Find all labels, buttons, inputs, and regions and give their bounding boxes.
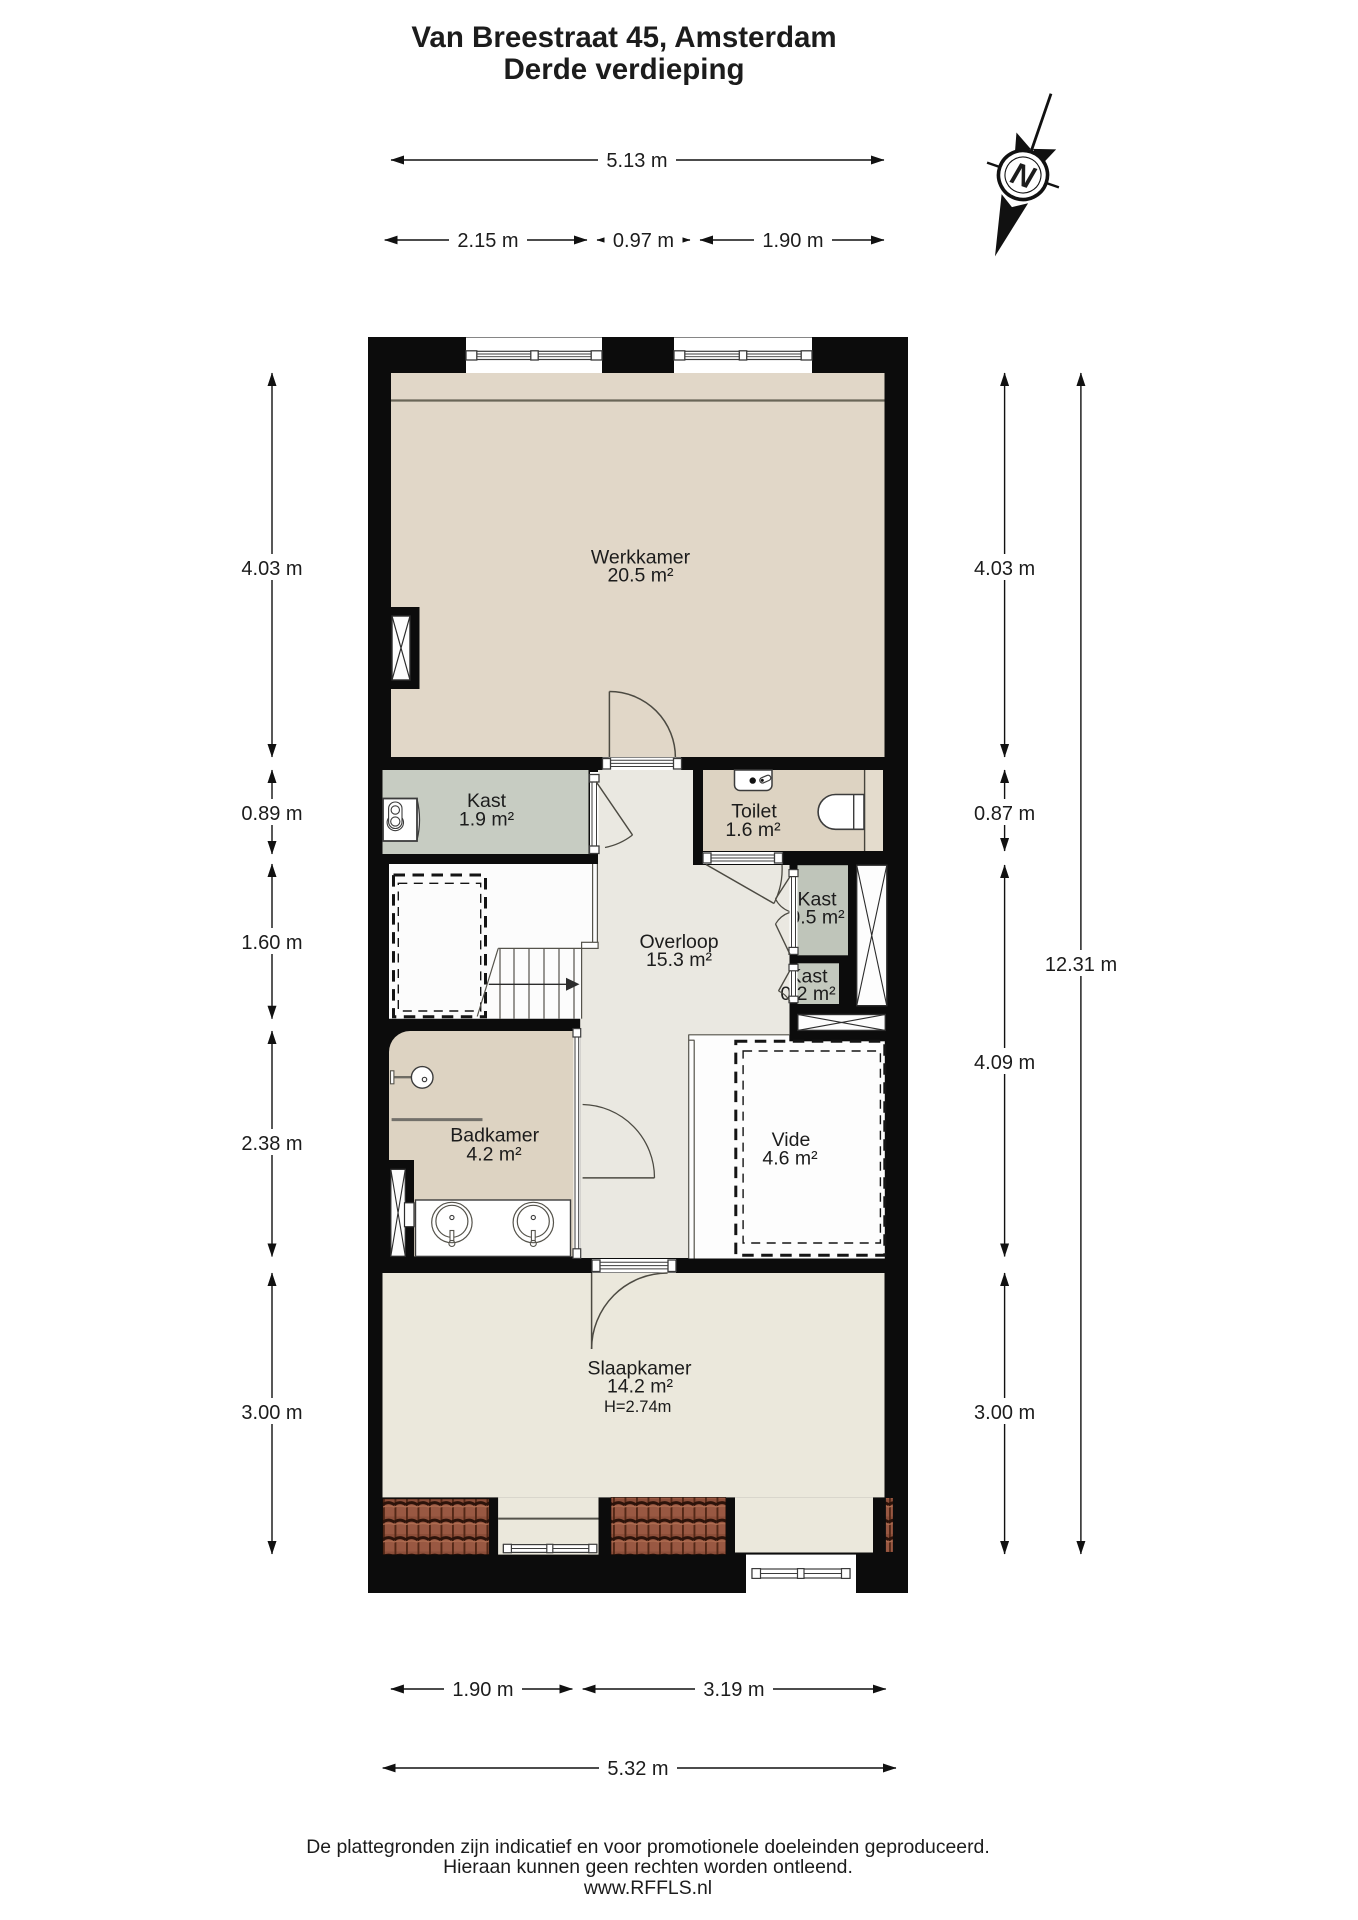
svg-text:3.00 m: 3.00 m [974,1402,1035,1424]
svg-text:20.5 m²: 20.5 m² [607,565,674,587]
svg-text:2.38 m: 2.38 m [241,1133,302,1155]
svg-text:5.32 m: 5.32 m [607,1758,668,1780]
svg-text:15.3 m²: 15.3 m² [646,949,713,971]
svg-text:1.90 m: 1.90 m [762,230,823,252]
svg-text:3.00 m: 3.00 m [241,1402,302,1424]
svg-text:4.2 m²: 4.2 m² [466,1144,522,1166]
svg-text:Hieraan kunnen geen rechten wo: Hieraan kunnen geen rechten worden ontle… [443,1856,853,1878]
svg-text:H=2.74m: H=2.74m [604,1398,671,1416]
svg-text:Van Breestraat 45, Amsterdam: Van Breestraat 45, Amsterdam [411,21,836,54]
svg-text:14.2 m²: 14.2 m² [607,1375,674,1397]
svg-text:0.87 m: 0.87 m [974,803,1035,825]
svg-text:5.13 m: 5.13 m [606,150,667,172]
svg-text:4.03 m: 4.03 m [974,558,1035,580]
svg-text:1.6 m²: 1.6 m² [725,819,781,841]
svg-text:0.5 m²: 0.5 m² [789,907,845,929]
svg-text:1.9 m²: 1.9 m² [459,809,515,831]
svg-text:3.19 m: 3.19 m [703,1679,764,1701]
svg-text:1.90 m: 1.90 m [452,1679,513,1701]
svg-text:0.89 m: 0.89 m [241,803,302,825]
svg-text:De plattegronden zijn indicati: De plattegronden zijn indicatief en voor… [306,1836,989,1858]
svg-text:Derde verdieping: Derde verdieping [504,53,745,86]
svg-text:2.15 m: 2.15 m [457,230,518,252]
svg-text:4.09 m: 4.09 m [974,1052,1035,1074]
svg-text:0.97 m: 0.97 m [613,230,674,252]
svg-text:1.60 m: 1.60 m [241,932,302,954]
svg-text:12.31 m: 12.31 m [1045,954,1117,976]
svg-text:www.RFFLS.nl: www.RFFLS.nl [583,1877,712,1899]
svg-text:4.03 m: 4.03 m [241,558,302,580]
svg-text:4.6 m²: 4.6 m² [762,1148,818,1170]
